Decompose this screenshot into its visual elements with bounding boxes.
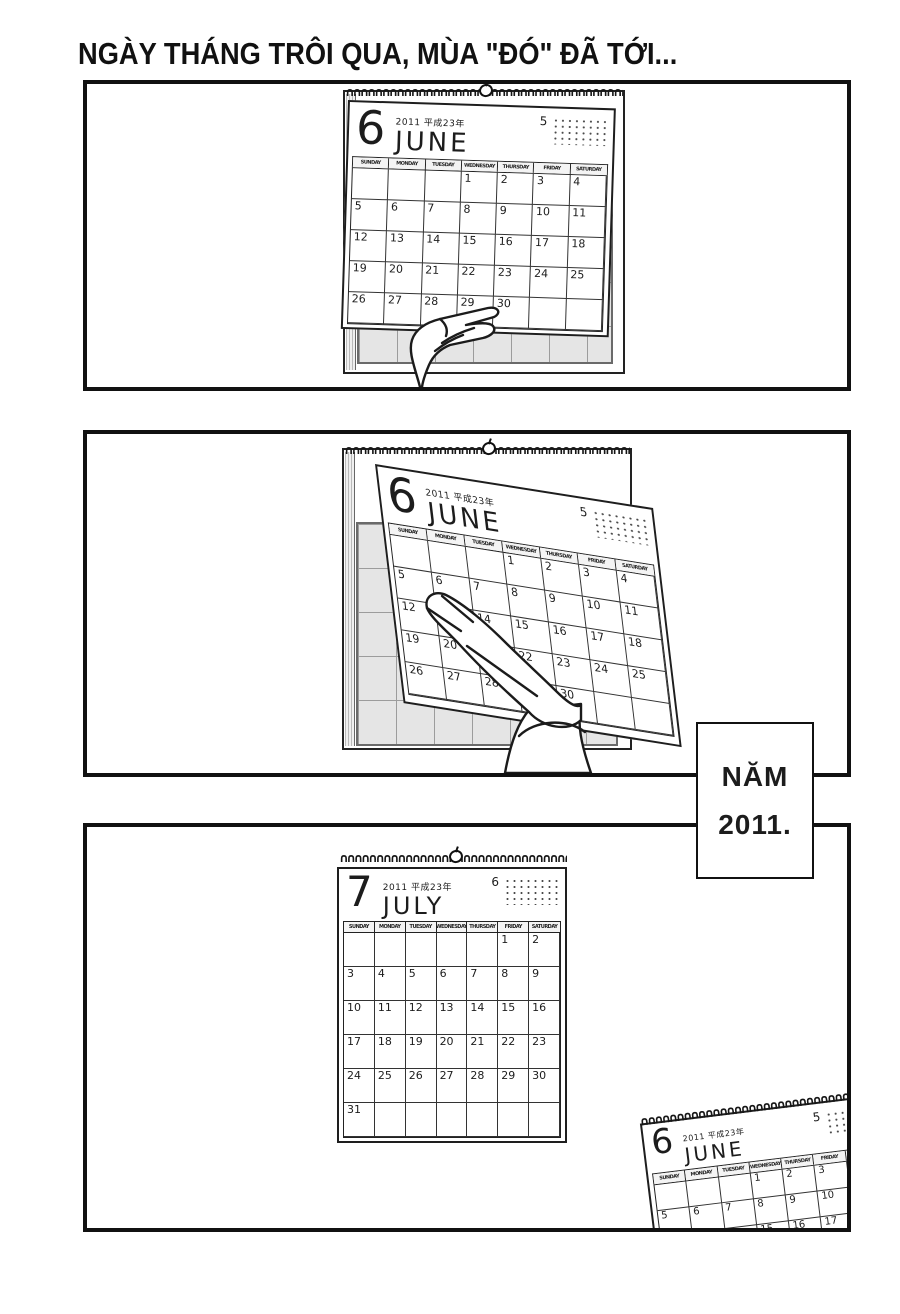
weekday-header-row: SUNDAYMONDAYTUESDAYWEDNESDAYTHURSDAYFRID… xyxy=(343,921,561,932)
calendar-day-cell: 4 xyxy=(569,175,606,207)
calendar-day-cell: 17 xyxy=(821,1213,851,1232)
calendar-july-panel3: 7 2011 平成23年 JULY 6 SUNDAYMONDAYTUESDAYW… xyxy=(337,867,567,1143)
calendar-day-cell xyxy=(632,698,674,736)
calendar-day-cell xyxy=(375,933,406,967)
calendar-day-cell: 21 xyxy=(421,263,458,295)
day-number: 8 xyxy=(460,203,496,216)
mini-month-label: 5 xyxy=(579,504,590,536)
day-number: 7 xyxy=(722,1199,754,1214)
day-number: 15 xyxy=(459,234,495,247)
day-number: 1 xyxy=(751,1170,783,1185)
day-number xyxy=(567,299,602,301)
calendar-day-cell: 8 xyxy=(498,967,529,1001)
day-number: 18 xyxy=(375,1035,405,1047)
day-number: 24 xyxy=(531,267,567,280)
calendar-day-cell xyxy=(566,299,603,331)
calendar-day-cell: 15 xyxy=(498,1001,529,1035)
day-number xyxy=(389,169,424,171)
day-number: 15 xyxy=(498,1001,528,1013)
day-number: 8 xyxy=(754,1195,786,1210)
calendar-day-cell xyxy=(498,1103,529,1137)
calendar-day-cell: 5 xyxy=(658,1207,693,1232)
calendar-day-cell xyxy=(529,1103,560,1137)
calendar-day-cell: 25 xyxy=(567,268,604,300)
calendar-day-cell: 9 xyxy=(786,1191,821,1221)
month-name: JUNE xyxy=(395,127,470,159)
calendar-day-cell: 10 xyxy=(818,1188,851,1218)
day-number: 11 xyxy=(375,1001,405,1013)
calendar-day-cell: 3 xyxy=(533,174,570,206)
calendar-day-cell: 27 xyxy=(437,1069,468,1103)
month-digit: 6 xyxy=(650,1126,675,1160)
calendar-day-cell: 2 xyxy=(529,933,560,967)
calendar-day-cell xyxy=(406,933,437,967)
day-number: 19 xyxy=(350,261,386,274)
mini-month-label: 6 xyxy=(491,875,499,905)
day-number: 30 xyxy=(529,1069,559,1081)
calendar-day-cell: 11 xyxy=(569,206,606,238)
day-number xyxy=(406,1103,436,1104)
day-number: 31 xyxy=(344,1103,374,1115)
day-number: 3 xyxy=(534,174,570,187)
weekday-header-cell: WEDNESDAY xyxy=(462,161,499,172)
day-number xyxy=(344,933,374,934)
calendar-day-cell: 8 xyxy=(754,1195,789,1225)
weekday-header-cell: SATURDAY xyxy=(529,922,560,932)
day-number: 21 xyxy=(422,263,458,276)
day-number: 2 xyxy=(498,173,534,186)
calendar-day-cell: 23 xyxy=(529,1035,560,1069)
calendar-day-cell xyxy=(655,1181,690,1211)
day-number: 22 xyxy=(498,1035,528,1047)
day-number xyxy=(425,170,460,172)
caption-box: NĂM 2011. xyxy=(696,722,814,879)
calendar-day-cell xyxy=(406,1103,437,1137)
calendar-day-cell: 13 xyxy=(386,231,423,263)
hand-pulling-page-icon xyxy=(407,584,637,773)
calendar-day-cell: 5 xyxy=(351,199,388,231)
day-number: 22 xyxy=(458,265,494,278)
calendar-day-cell: 3 xyxy=(815,1162,850,1192)
day-number: 11 xyxy=(850,1184,851,1199)
day-number: 10 xyxy=(344,1001,374,1013)
day-number xyxy=(498,1103,528,1104)
calendar-day-cell: 31 xyxy=(344,1103,375,1137)
calendar-day-cell: 8 xyxy=(460,203,497,235)
calendar-day-cell xyxy=(437,933,468,967)
calendar-day-cell: 29 xyxy=(498,1069,529,1103)
calendar-day-cell: 22 xyxy=(498,1035,529,1069)
day-number: 13 xyxy=(387,231,423,244)
calendar-day-cell: 1 xyxy=(461,172,498,204)
calendar-day-cell: 23 xyxy=(494,266,531,298)
day-number: 11 xyxy=(569,206,605,219)
month-digit: 6 xyxy=(355,106,386,149)
day-number: 5 xyxy=(406,967,436,979)
calendar-page-stack-edge xyxy=(345,452,355,746)
day-number: 18 xyxy=(568,237,604,250)
mini-calendar-dots xyxy=(504,878,558,905)
calendar-day-cell: 19 xyxy=(406,1035,437,1069)
calendar-day-cell: 14 xyxy=(422,232,459,264)
calendar-day-cell: 24 xyxy=(344,1069,375,1103)
calendar-day-cell: 25 xyxy=(375,1069,406,1103)
calendar-day-cell: 26 xyxy=(406,1069,437,1103)
calendar-day-cell: 6 xyxy=(387,200,424,232)
calendar-day-cell xyxy=(529,298,566,330)
calendar-day-cell: 1 xyxy=(751,1170,786,1200)
calendar-day-cell: 9 xyxy=(496,204,533,236)
weekday-header-cell: FRIDAY xyxy=(534,163,571,174)
calendar-day-cell: 17 xyxy=(344,1035,375,1069)
weekday-header-cell: MONDAY xyxy=(389,158,426,169)
weekday-header-cell: SATURDAY xyxy=(570,164,607,175)
panel-1: ∩∩∩∩∩∩∩∩∩∩∩∩∩∩∩∩∩∩∩∩∩∩∩∩∩∩∩∩∩∩∩∩∩∩∩∩∩∩∩∩… xyxy=(83,80,851,391)
day-number: 20 xyxy=(386,262,422,275)
calendar-day-cell: 10 xyxy=(344,1001,375,1035)
day-number: 9 xyxy=(529,967,559,979)
calendar-day-cell: 1 xyxy=(498,933,529,967)
calendar-day-cell: 6 xyxy=(690,1203,725,1232)
calendar-day-cell: 22 xyxy=(458,265,495,297)
day-number: 23 xyxy=(495,266,531,279)
day-number: 24 xyxy=(344,1069,374,1081)
calendar-day-cell: 11 xyxy=(375,1001,406,1035)
calendar-june-torn-page: ∩∩∩∩∩∩∩∩∩∩∩∩∩∩∩∩∩∩∩∩∩∩∩∩∩∩∩∩∩∩∩∩∩∩∩∩∩∩∩∩… xyxy=(640,1094,851,1232)
mini-calendar: 6 xyxy=(491,875,558,905)
calendar-day-cell xyxy=(437,1103,468,1137)
day-number: 6 xyxy=(437,967,467,979)
day-number: 4 xyxy=(375,967,405,979)
day-number: 16 xyxy=(789,1217,821,1232)
day-number: 2 xyxy=(529,933,559,945)
calendar-day-cell xyxy=(344,933,375,967)
calendar-day-cell: 11 xyxy=(850,1184,851,1214)
day-number: 25 xyxy=(375,1069,405,1081)
weekday-header-cell: SUNDAY xyxy=(353,157,390,168)
day-number: 26 xyxy=(406,1069,436,1081)
calendar-day-cell: 18 xyxy=(568,237,605,269)
weekday-header-cell: WEDNESDAY xyxy=(437,922,468,932)
day-number xyxy=(375,1103,405,1104)
calendar-day-cell: 16 xyxy=(789,1217,824,1232)
calendar-day-cell: 7 xyxy=(467,967,498,1001)
caption-line-1: NĂM xyxy=(722,761,789,793)
day-number: 6 xyxy=(690,1203,722,1218)
mini-month-label: 5 xyxy=(812,1110,823,1136)
day-number: 20 xyxy=(437,1035,467,1047)
calendar-day-cell: 10 xyxy=(532,205,569,237)
calendar-day-cell: 2 xyxy=(497,173,534,205)
day-number xyxy=(375,933,405,934)
calendar-day-cell: 15 xyxy=(459,234,496,266)
mini-calendar-dots xyxy=(825,1106,851,1133)
calendar-day-cell: 20 xyxy=(385,262,422,294)
calendar-day-cell: 24 xyxy=(530,267,567,299)
calendar-header: 6 2011 平成23年 JUNE 5 xyxy=(348,102,613,161)
mini-calendar: 5 xyxy=(579,504,649,545)
day-number: 10 xyxy=(533,205,569,218)
weekday-header-cell: SATURDAY xyxy=(845,1147,851,1161)
day-number: 7 xyxy=(467,967,497,979)
day-number xyxy=(530,298,565,300)
calendar-day-cell xyxy=(352,168,389,200)
calendar-day-cell: 7 xyxy=(423,201,460,233)
calendar-day-cell: 14 xyxy=(467,1001,498,1035)
day-number: 2 xyxy=(783,1166,815,1181)
calendar-day-cell xyxy=(375,1103,406,1137)
calendar-day-cell: 4 xyxy=(375,967,406,1001)
day-number: 3 xyxy=(344,967,374,979)
day-number xyxy=(467,933,497,934)
calendar-day-cell xyxy=(687,1177,722,1207)
calendar-day-cell: 13 xyxy=(437,1001,468,1035)
month-digit: 6 xyxy=(385,472,419,520)
day-number: 8 xyxy=(498,967,528,979)
day-number: 4 xyxy=(847,1158,851,1173)
day-number: 9 xyxy=(786,1192,818,1207)
day-number: 13 xyxy=(693,1229,725,1232)
mini-calendar-dots xyxy=(592,509,649,545)
day-number: 16 xyxy=(529,1001,559,1013)
calendar-day-cell: 19 xyxy=(349,261,386,293)
day-number: 5 xyxy=(658,1207,690,1222)
weekday-header-cell: TUESDAY xyxy=(406,922,437,932)
mini-calendar: 5 xyxy=(539,114,607,146)
weekday-header-cell: THURSDAY xyxy=(467,922,498,932)
day-number: 17 xyxy=(344,1035,374,1047)
calendar-day-grid: 1234567891011121314151617181920212223242… xyxy=(343,932,561,1138)
calendar-day-cell: 2 xyxy=(783,1166,818,1196)
day-number: 28 xyxy=(467,1069,497,1081)
day-number: 19 xyxy=(406,1035,436,1047)
page-title: NGÀY THÁNG TRÔI QUA, MÙA "ĐÓ" ĐÃ TỚI... xyxy=(78,36,677,72)
day-number: 12 xyxy=(406,1001,436,1013)
day-number: 1 xyxy=(498,933,528,945)
day-number: 27 xyxy=(437,1069,467,1081)
weekday-header-cell: SUNDAY xyxy=(344,922,375,932)
calendar-day-cell: 12 xyxy=(350,230,387,262)
caption-line-2: 2011. xyxy=(718,809,792,841)
calendar-day-cell: 6 xyxy=(437,967,468,1001)
calendar-day-cell: 7 xyxy=(722,1199,757,1229)
day-number: 17 xyxy=(821,1213,851,1228)
calendar-day-cell: 16 xyxy=(495,235,532,267)
weekday-header-cell: THURSDAY xyxy=(498,162,535,173)
calendar-day-cell: 3 xyxy=(344,967,375,1001)
calendar-day-cell xyxy=(388,169,425,201)
day-number: 9 xyxy=(497,204,533,217)
day-number xyxy=(437,933,467,934)
calendar-day-cell xyxy=(467,933,498,967)
day-number: 25 xyxy=(567,268,603,281)
calendar-day-cell: 21 xyxy=(467,1035,498,1069)
day-number xyxy=(437,1103,467,1104)
weekday-header-cell: TUESDAY xyxy=(425,159,462,170)
calendar-day-cell: 13 xyxy=(693,1229,728,1232)
mini-month-label: 5 xyxy=(539,114,548,144)
calendar-day-cell xyxy=(467,1103,498,1137)
day-number: 10 xyxy=(818,1188,850,1203)
day-number: 17 xyxy=(532,236,568,249)
calendar-day-cell xyxy=(424,170,461,202)
day-number: 14 xyxy=(467,1001,497,1013)
calendar-day-cell: 30 xyxy=(529,1069,560,1103)
day-number xyxy=(529,1103,559,1104)
hand-tearing-page-icon xyxy=(342,296,532,387)
weekday-header-cell: FRIDAY xyxy=(498,922,529,932)
day-number: 29 xyxy=(498,1069,528,1081)
calendar-header: 7 2011 平成23年 JULY 6 xyxy=(339,869,565,918)
mini-calendar-dots xyxy=(552,117,607,146)
calendar-day-cell: 4 xyxy=(847,1158,851,1188)
calendar-day-cell: 12 xyxy=(406,1001,437,1035)
day-number: 13 xyxy=(437,1001,467,1013)
day-number: 6 xyxy=(388,200,424,213)
day-number: 5 xyxy=(352,199,388,212)
day-number: 14 xyxy=(423,232,459,245)
day-number xyxy=(467,1103,497,1104)
day-number: 23 xyxy=(529,1035,559,1047)
calendar-day-cell: 9 xyxy=(529,967,560,1001)
day-number: 12 xyxy=(351,230,387,243)
day-number: 1 xyxy=(461,172,497,185)
calendar-day-cell: 28 xyxy=(467,1069,498,1103)
calendar-day-cell: 16 xyxy=(529,1001,560,1035)
panel-3: ∩∩∩∩∩∩∩∩∩∩∩∩∩∩∩∩∩∩∩∩∩∩∩∩∩∩∩∩∩∩∩∩∩∩∩∩∩∩∩∩… xyxy=(83,823,851,1232)
month-digit: 7 xyxy=(346,873,373,912)
calendar-day-cell xyxy=(719,1173,754,1203)
calendar-day-cell: 20 xyxy=(437,1035,468,1069)
day-number: 16 xyxy=(496,235,532,248)
calendar-day-cell: 5 xyxy=(406,967,437,1001)
day-number xyxy=(353,168,388,170)
day-number xyxy=(406,933,436,934)
month-name: JULY xyxy=(383,892,445,920)
calendar-day-cell: 17 xyxy=(531,236,568,268)
day-number: 21 xyxy=(467,1035,497,1047)
day-number: 4 xyxy=(570,175,606,188)
day-number: 7 xyxy=(424,201,460,214)
calendar-day-cell: 18 xyxy=(375,1035,406,1069)
day-number: 3 xyxy=(815,1162,847,1177)
weekday-header-cell: MONDAY xyxy=(375,922,406,932)
